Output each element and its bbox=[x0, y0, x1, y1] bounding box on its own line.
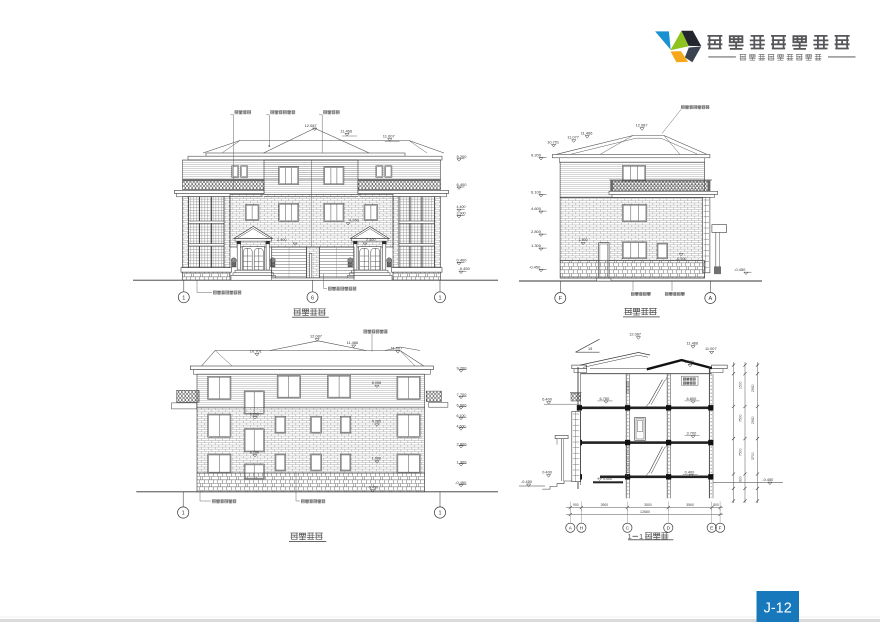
svg-text:6.780: 6.780 bbox=[600, 396, 611, 401]
svg-text:12.087: 12.087 bbox=[305, 123, 318, 128]
svg-text:-0.450: -0.450 bbox=[734, 267, 746, 272]
svg-text:12.087: 12.087 bbox=[310, 334, 322, 339]
svg-text:-0.900: -0.900 bbox=[676, 257, 686, 261]
svg-text:-0.450: -0.450 bbox=[529, 264, 541, 269]
svg-text:9.200: 9.200 bbox=[531, 153, 542, 158]
svg-text:11.466: 11.466 bbox=[347, 340, 359, 345]
svg-text:A: A bbox=[708, 296, 712, 302]
svg-text:15: 15 bbox=[588, 347, 592, 351]
svg-text:2.400: 2.400 bbox=[366, 238, 376, 242]
svg-text:0.000: 0.000 bbox=[603, 477, 612, 481]
svg-text:6.800: 6.800 bbox=[687, 396, 698, 401]
svg-text:11.466: 11.466 bbox=[581, 131, 593, 136]
svg-text:8.058: 8.058 bbox=[372, 381, 381, 385]
svg-text:3700: 3700 bbox=[751, 452, 755, 460]
svg-text:1.680: 1.680 bbox=[372, 457, 381, 461]
svg-text:0.400: 0.400 bbox=[685, 470, 696, 475]
svg-text:4.780: 4.780 bbox=[372, 420, 381, 424]
svg-text:1: 1 bbox=[182, 295, 185, 301]
svg-text:7500: 7500 bbox=[739, 448, 743, 456]
svg-text:11.007: 11.007 bbox=[705, 346, 717, 351]
svg-text:1: 1 bbox=[438, 511, 441, 517]
svg-text:11.466: 11.466 bbox=[687, 341, 699, 346]
svg-text:0.400: 0.400 bbox=[457, 258, 468, 263]
svg-text:6.100: 6.100 bbox=[457, 414, 466, 418]
svg-text:6.400: 6.400 bbox=[457, 182, 468, 187]
svg-text:11.466: 11.466 bbox=[340, 128, 353, 133]
svg-text:D: D bbox=[667, 526, 671, 532]
svg-text:2.400: 2.400 bbox=[277, 238, 287, 242]
svg-text:-0.450: -0.450 bbox=[459, 266, 471, 271]
svg-text:9.200: 9.200 bbox=[457, 154, 468, 159]
svg-text:3500: 3500 bbox=[644, 503, 652, 507]
svg-text:4.400: 4.400 bbox=[457, 205, 466, 209]
svg-text:800: 800 bbox=[713, 503, 719, 507]
svg-text:6.558: 6.558 bbox=[250, 413, 259, 417]
svg-text:-0.450: -0.450 bbox=[368, 485, 378, 489]
svg-text:C: C bbox=[626, 526, 630, 532]
svg-text:900: 900 bbox=[739, 476, 743, 482]
svg-text:1.300: 1.300 bbox=[531, 243, 542, 248]
svg-text:900: 900 bbox=[573, 503, 579, 507]
svg-text:11.007: 11.007 bbox=[391, 346, 403, 351]
svg-text:1.500: 1.500 bbox=[579, 238, 588, 242]
svg-text:2930: 2930 bbox=[751, 384, 755, 392]
svg-text:-0.450: -0.450 bbox=[762, 477, 774, 482]
svg-text:3560: 3560 bbox=[686, 503, 694, 507]
svg-text:7500: 7500 bbox=[739, 414, 743, 422]
svg-text:11.077: 11.077 bbox=[567, 135, 579, 140]
svg-text:6.100: 6.100 bbox=[531, 190, 542, 195]
svg-text:4.600: 4.600 bbox=[457, 425, 466, 429]
svg-text:3.280: 3.280 bbox=[250, 450, 259, 454]
svg-text:6: 6 bbox=[311, 295, 314, 301]
svg-text:10.701: 10.701 bbox=[547, 139, 559, 144]
svg-text:9.800: 9.800 bbox=[685, 360, 694, 364]
svg-text:12.087: 12.087 bbox=[636, 123, 648, 128]
svg-text:1500: 1500 bbox=[739, 381, 743, 389]
svg-text:H: H bbox=[580, 526, 584, 532]
svg-text:3900: 3900 bbox=[601, 503, 609, 507]
svg-text:2930: 2930 bbox=[751, 416, 755, 424]
svg-text:10.701: 10.701 bbox=[250, 348, 262, 353]
svg-text:6.400: 6.400 bbox=[542, 397, 553, 402]
svg-text:-0.450: -0.450 bbox=[521, 479, 533, 484]
svg-text:4.600: 4.600 bbox=[531, 206, 542, 211]
svg-text:3.700: 3.700 bbox=[687, 431, 698, 436]
svg-text:2.800: 2.800 bbox=[531, 229, 542, 234]
svg-text:12.087: 12.087 bbox=[629, 332, 641, 337]
svg-text:1: 1 bbox=[438, 295, 441, 301]
svg-text:4.200: 4.200 bbox=[349, 217, 360, 222]
svg-text:1: 1 bbox=[182, 511, 185, 517]
svg-text:3.900: 3.900 bbox=[457, 212, 466, 216]
svg-text:F: F bbox=[719, 526, 722, 532]
svg-text:E: E bbox=[710, 526, 713, 532]
svg-text:J-12: J-12 bbox=[764, 601, 792, 617]
svg-text:11.007: 11.007 bbox=[383, 134, 396, 139]
svg-text:0.400: 0.400 bbox=[542, 470, 553, 475]
svg-text:12660: 12660 bbox=[640, 510, 650, 514]
